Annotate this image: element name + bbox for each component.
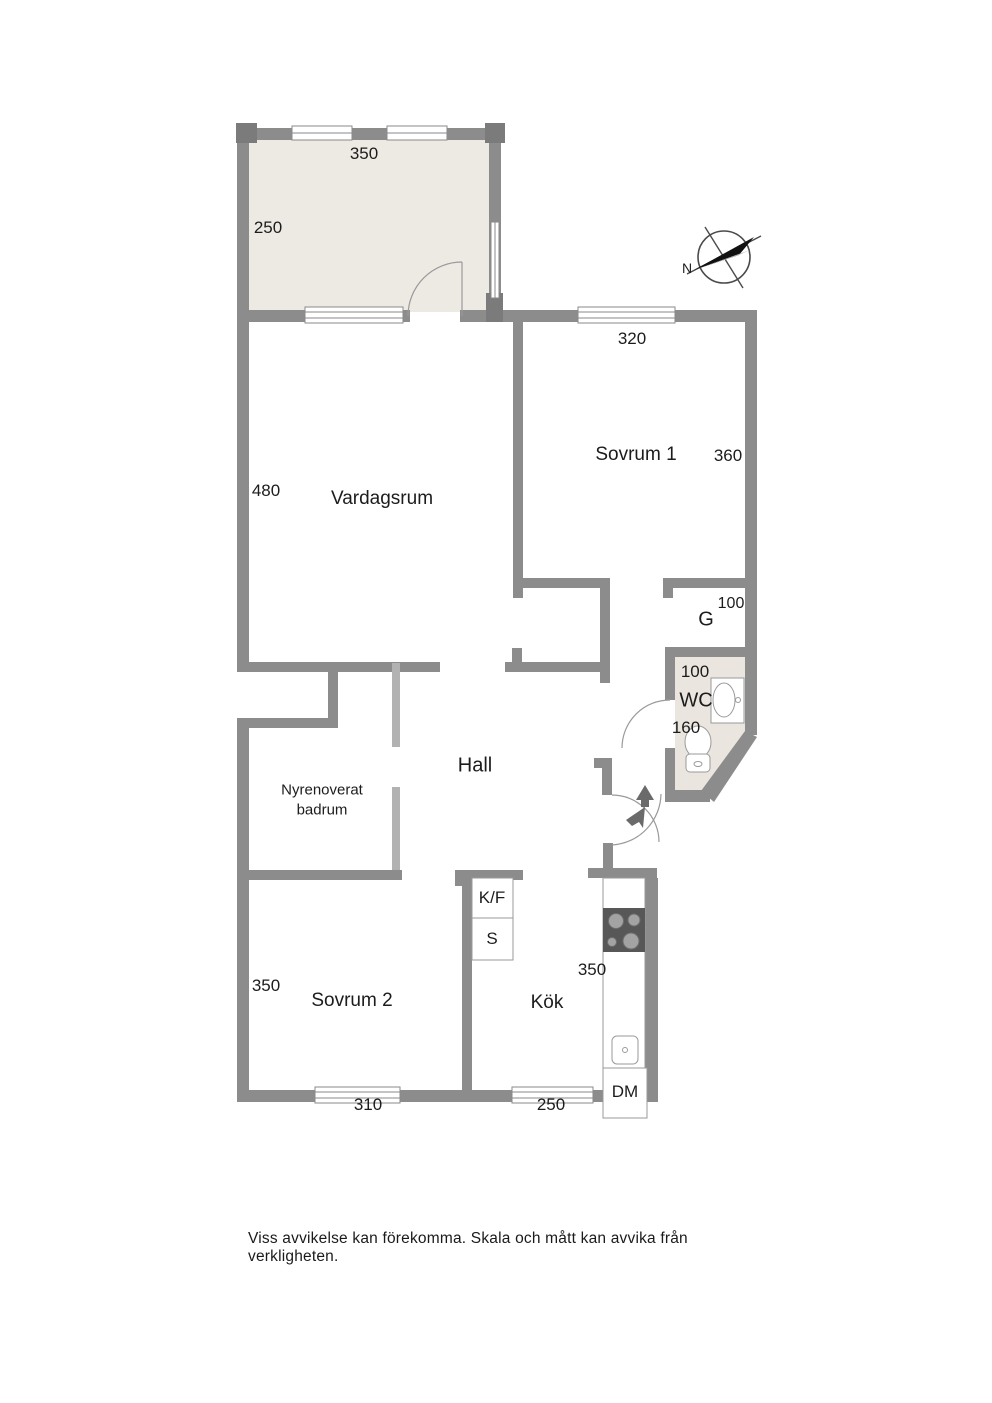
badrum-right-wall-upper bbox=[392, 663, 400, 747]
closet-g-dim: 100 bbox=[718, 595, 745, 613]
sovrum2-height-dim: 350 bbox=[252, 976, 280, 996]
balcony-left-wall bbox=[237, 128, 249, 320]
wc-left-wall-upper bbox=[665, 647, 675, 700]
vardagsrum-label: Vardagsrum bbox=[331, 488, 433, 510]
vardagsrum-window bbox=[305, 307, 403, 323]
balcony-window-side bbox=[491, 222, 499, 298]
wc-height-dim: 160 bbox=[672, 718, 700, 738]
balcony-window-top-left bbox=[292, 126, 352, 140]
sovrum2-width-dim: 310 bbox=[354, 1095, 382, 1115]
kok-width-dim: 250 bbox=[537, 1095, 565, 1115]
left-outer-wall-lower bbox=[237, 718, 249, 1102]
closet-door-stub bbox=[663, 578, 673, 598]
vardagsrum-sovrum1-wall bbox=[513, 322, 523, 598]
badrum-label-line1: Nyrenoverat bbox=[281, 781, 363, 798]
kitchen-sink-icon bbox=[612, 1036, 638, 1064]
badrum-label-line2: badrum bbox=[297, 801, 348, 818]
sovrum1-height-dim: 360 bbox=[714, 446, 742, 466]
balcony-window-top-right bbox=[387, 126, 447, 140]
disclaimer-text: Viss avvikelse kan förekomma. Skala och … bbox=[248, 1230, 744, 1266]
kitchen-top-wall-right bbox=[588, 868, 657, 878]
entry-arrows bbox=[626, 785, 654, 828]
badrum-bottom-wall bbox=[237, 870, 402, 880]
top-wall-seg4 bbox=[675, 310, 757, 322]
dishwasher-label: DM bbox=[612, 1082, 638, 1102]
sovrum1-width-dim: 320 bbox=[618, 329, 646, 349]
wc-door-arc bbox=[622, 700, 670, 748]
sovrum2-kok-wall bbox=[462, 880, 472, 1090]
floor-plan-drawing bbox=[0, 0, 992, 1403]
wc-left-wall-lower bbox=[665, 748, 675, 792]
entry-upper-nub bbox=[594, 758, 612, 768]
closet-top-wall bbox=[663, 578, 745, 588]
top-wall-seg2 bbox=[403, 310, 410, 322]
balcony-corner-tl bbox=[236, 123, 257, 143]
doors bbox=[408, 262, 670, 845]
notch-right-wall bbox=[328, 672, 338, 720]
balcony-corner-tr bbox=[485, 123, 505, 143]
entry-arrow-left-icon bbox=[626, 807, 645, 828]
closet-bottom-wall bbox=[668, 647, 745, 657]
wc-sink-icon bbox=[711, 678, 744, 723]
balcony-top-wall bbox=[237, 128, 505, 140]
kok-label: Kök bbox=[531, 992, 564, 1014]
pantry-label: S bbox=[486, 929, 497, 949]
wc-width-dim: 100 bbox=[681, 662, 709, 682]
corridor-left-wall bbox=[600, 578, 610, 683]
left-outer-wall-upper bbox=[237, 310, 249, 672]
sovrum1-window bbox=[578, 307, 675, 323]
kok-height-dim: 350 bbox=[578, 960, 606, 980]
sovrum1-bottom-wall bbox=[513, 578, 610, 588]
top-wall-seg3 bbox=[460, 310, 578, 322]
hall-label: Hall bbox=[458, 755, 492, 778]
floor-plan-page: 350 250 480 Vardagsrum 320 Sovrum 1 360 … bbox=[0, 0, 992, 1403]
notch-bottom-wall bbox=[237, 718, 338, 728]
hall-wall-stub bbox=[512, 648, 522, 664]
balcony-width-dim: 350 bbox=[350, 144, 378, 164]
light-partitions bbox=[392, 663, 400, 870]
balcony-height-dim: 250 bbox=[254, 218, 282, 238]
badrum-right-wall-lower bbox=[392, 787, 400, 870]
closet-g-label: G bbox=[698, 609, 714, 632]
sovrum1-label: Sovrum 1 bbox=[595, 444, 676, 466]
stove-icon bbox=[603, 908, 645, 952]
fridge-freezer-label: K/F bbox=[479, 888, 505, 908]
right-outer-wall bbox=[745, 310, 757, 735]
vardagsrum-height-dim: 480 bbox=[252, 481, 280, 501]
entry-lower-stub bbox=[603, 843, 613, 878]
balcony-floor bbox=[249, 140, 489, 312]
sovrum2-label: Sovrum 2 bbox=[311, 990, 392, 1012]
bottom-outer-wall bbox=[237, 1090, 658, 1102]
compass-icon bbox=[687, 227, 761, 288]
vardagsrum-bottom-wall bbox=[237, 662, 440, 672]
wc-label: WC bbox=[679, 690, 712, 713]
compass-north-label: N bbox=[682, 260, 692, 276]
